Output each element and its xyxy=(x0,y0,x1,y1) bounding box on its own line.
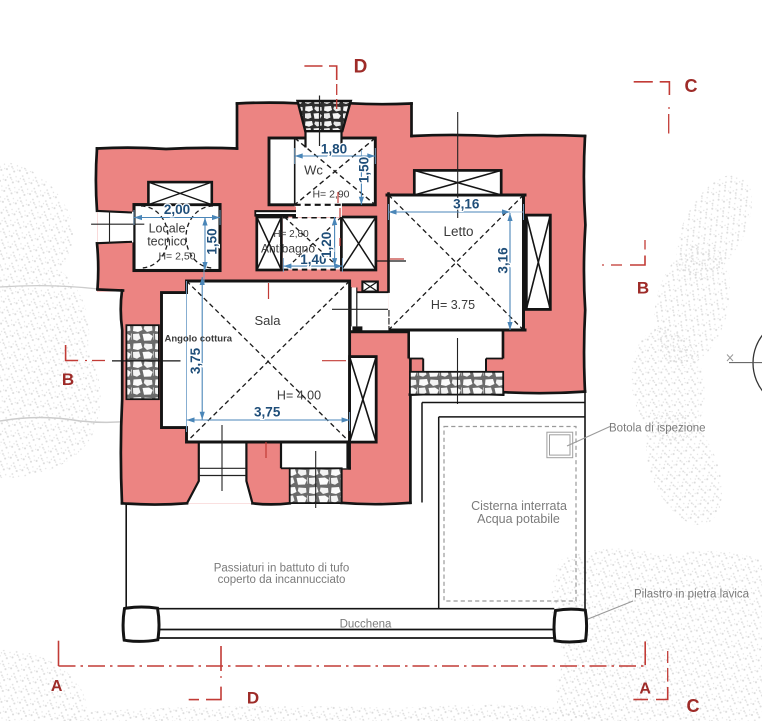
svg-text:1,80: 1,80 xyxy=(321,142,347,157)
svg-text:Sala: Sala xyxy=(254,313,281,328)
svg-text:3,75: 3,75 xyxy=(188,347,203,374)
svg-text:H= 4.00: H= 4.00 xyxy=(277,389,321,403)
svg-text:1,20: 1,20 xyxy=(319,232,334,258)
svg-text:B: B xyxy=(62,370,74,389)
svg-text:3,16: 3,16 xyxy=(496,247,511,274)
svg-text:Antibagno: Antibagno xyxy=(261,242,315,256)
svg-text:3,16: 3,16 xyxy=(453,197,480,212)
svg-text:Wc: Wc xyxy=(304,163,323,178)
svg-text:1,50: 1,50 xyxy=(205,228,220,254)
svg-text:Cisterna interrata: Cisterna interrata xyxy=(471,499,567,513)
svg-text:H= 2,90: H= 2,90 xyxy=(312,189,349,201)
svg-text:H= 2,50: H= 2,50 xyxy=(158,251,195,263)
svg-text:coperto da incannucciato: coperto da incannucciato xyxy=(218,574,346,586)
svg-text:Locale: Locale xyxy=(149,222,186,236)
svg-text:Letto: Letto xyxy=(443,224,473,239)
svg-text:B: B xyxy=(637,279,649,298)
svg-text:A: A xyxy=(639,681,651,698)
svg-text:Botola di ispezione: Botola di ispezione xyxy=(609,423,706,435)
svg-text:Passiaturi in battuto di tufo: Passiaturi in battuto di tufo xyxy=(214,563,350,575)
svg-text:2,00: 2,00 xyxy=(164,202,190,217)
svg-text:Pilastro in pietra lavica: Pilastro in pietra lavica xyxy=(634,589,750,601)
svg-text:C: C xyxy=(685,76,698,96)
svg-text:Ducchena: Ducchena xyxy=(340,619,392,631)
svg-text:1,50: 1,50 xyxy=(357,157,372,183)
svg-text:D: D xyxy=(247,689,259,708)
svg-text:H= 2,80: H= 2,80 xyxy=(273,229,309,240)
svg-text:H= 3.75: H= 3.75 xyxy=(431,298,475,312)
svg-text:D: D xyxy=(354,57,368,78)
svg-text:Angolo cottura: Angolo cottura xyxy=(165,334,233,345)
svg-text:tecnico: tecnico xyxy=(147,235,187,249)
svg-text:C: C xyxy=(687,696,700,716)
svg-text:A: A xyxy=(51,678,63,695)
svg-text:Acqua potabile: Acqua potabile xyxy=(477,512,560,526)
svg-text:3,75: 3,75 xyxy=(254,405,281,420)
